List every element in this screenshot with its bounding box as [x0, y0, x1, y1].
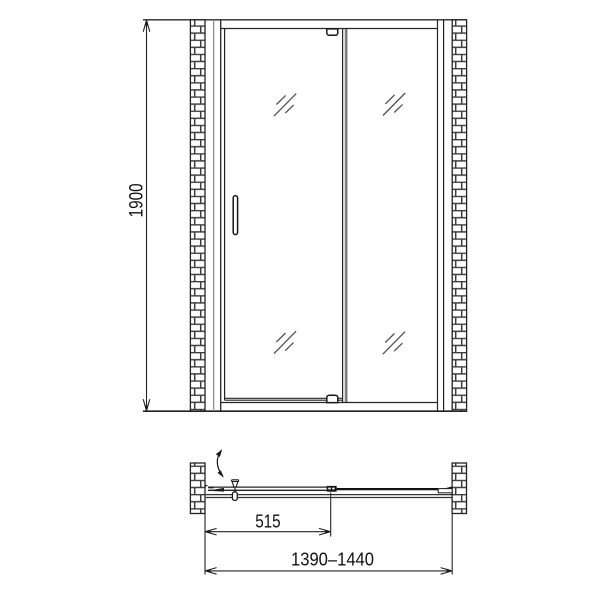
svg-text:1900: 1900	[126, 183, 147, 217]
svg-text:1390–1440: 1390–1440	[291, 548, 374, 569]
svg-text:515: 515	[255, 511, 281, 532]
